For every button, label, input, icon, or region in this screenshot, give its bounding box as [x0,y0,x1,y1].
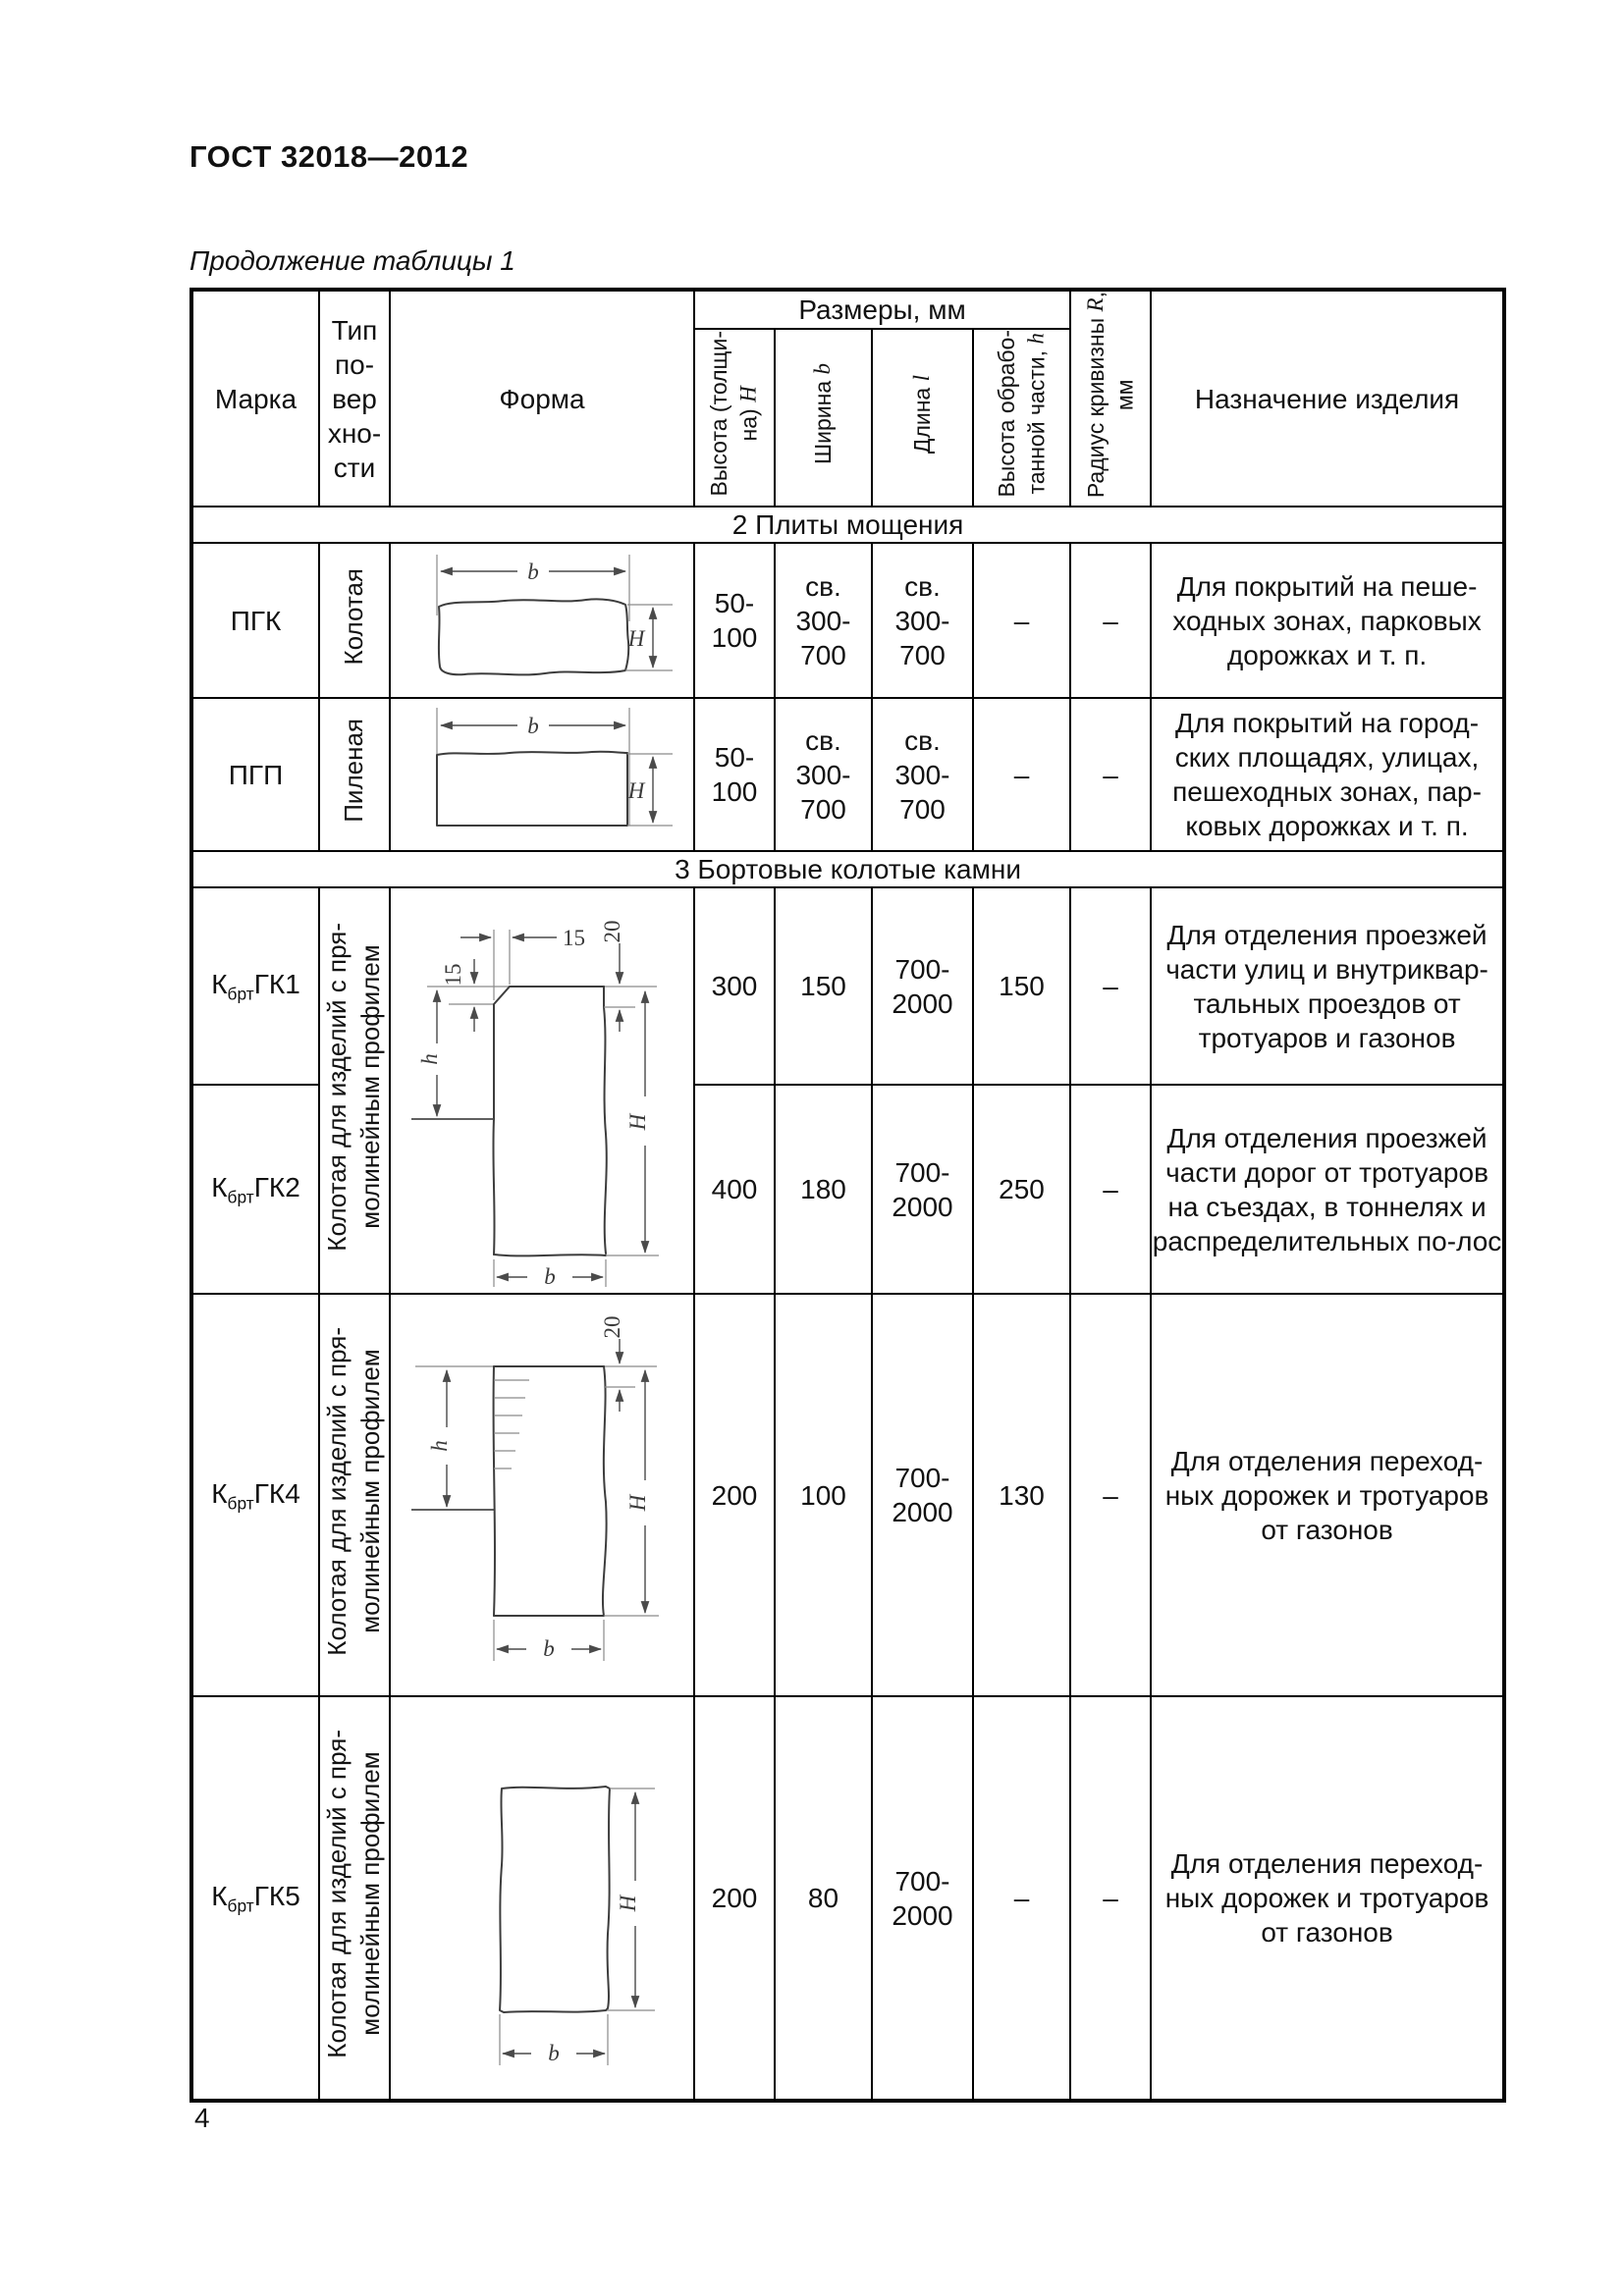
mark-prefix: К [211,1172,227,1202]
table-row: ПГК Колотая b H 50- 100 св. 300 [191,543,1504,698]
dim-label-b: b [527,560,539,584]
standard-number: ГОСТ 32018—2012 [189,139,468,175]
dim-label-H: H [625,1112,650,1131]
dim-label-20: 20 [600,921,624,943]
mark-prefix: К [211,1478,227,1509]
mark-suffix: ГК2 [254,1172,300,1202]
cell-length: св. 300- 700 [872,543,973,698]
radius-header-label: Радиус кривизны [1083,311,1109,498]
cell-radius: – [1070,698,1151,851]
cell-length: св. 300- 700 [872,698,973,851]
cell-mark-gk1: КбртГК1 [191,887,319,1085]
cell-form-gk1-gk2: 15 15 h [390,887,694,1294]
mark-prefix: К [211,1881,227,1911]
section-title-paving-slabs: 2 Плиты мощения [191,507,1504,543]
length-symbol: l [909,375,934,381]
cell-mark-gk5: КбртГК5 [191,1696,319,2101]
height-header-rotated: Высота (толщи- на) H [705,331,764,496]
products-table: Марка Тип по- вер хно- сти Форма Размеры… [189,288,1506,2103]
dim-label-b: b [548,2041,560,2065]
cell-worked-height: – [973,698,1070,851]
cell-mark-gk2: КбртГК2 [191,1085,319,1294]
section-row-paving: 2 Плиты мощения [191,507,1504,543]
cell-form-gk5: H b [390,1696,694,2101]
cell-width: св. 300- 700 [775,543,872,698]
dim-label-H: H [627,626,646,651]
cell-width: 150 [775,887,872,1085]
table-row: КбртГК4 Колотая для изделий с пря- молин… [191,1294,1504,1696]
cell-radius: – [1070,1085,1151,1294]
cell-width: св. 300- 700 [775,698,872,851]
width-header-label: Ширина [810,375,836,464]
dim-label-15: 15 [441,964,465,987]
cell-surface-pgk: Колотая [319,543,390,698]
worked-height-header-label: Высота обрабо- танной части, [994,330,1049,498]
cell-height: 200 [694,1696,775,2101]
cell-length: 700- 2000 [872,887,973,1085]
mark-suffix: ГК1 [254,969,300,999]
width-symbol: b [810,363,835,375]
cell-height: 50- 100 [694,543,775,698]
cell-length: 700- 2000 [872,1085,973,1294]
worked-height-header-rotated: Высота обрабо- танной части, h [993,330,1052,498]
radius-header-rotated: Радиус кривизны R, мм [1081,292,1140,498]
dim-label-h: h [417,1053,442,1065]
dim-label-b: b [543,1636,555,1661]
dim-label-b: b [527,714,539,738]
cell-mark-pgk: ПГК [191,543,319,698]
page-number: 4 [194,2103,210,2134]
height-header-label: Высота (толщи- на) [706,331,761,496]
cell-worked-height: – [973,1696,1070,2101]
surface-rotated-text: Колотая [338,568,371,666]
width-header-rotated: Ширина b [808,363,838,464]
cell-radius: – [1070,887,1151,1085]
col-header-radius: Радиус кривизны R, мм [1070,290,1151,507]
col-header-length: Длина l [872,329,973,507]
dim-label-b: b [544,1264,556,1289]
cell-mark-gk4: КбртГК4 [191,1294,319,1696]
dim-label-20: 20 [600,1316,624,1339]
cell-surface-gk4: Колотая для изделий с пря- молинейным пр… [319,1294,390,1696]
cell-width: 100 [775,1294,872,1696]
cell-purpose: Для отделения проезжей части дорог от тр… [1151,1085,1504,1294]
cell-purpose: Для покрытий на пеше-ходных зонах, парко… [1151,543,1504,698]
mark-prefix: К [211,969,227,999]
cell-purpose: Для отделения переход-ных дорожек и трот… [1151,1294,1504,1696]
dim-label-H: H [627,778,646,803]
curb-profile-drawing-gk4: 20 h H b [392,1296,692,1694]
cell-length: 700- 2000 [872,1294,973,1696]
table-row: КбртГК1 Колотая для изделий с пря- молин… [191,887,1504,1085]
col-header-height: Высота (толщи- на) H [694,329,775,507]
cell-form-pgk: b H [390,543,694,698]
table-row: КбртГК5 Колотая для изделий с пря- молин… [191,1696,1504,2101]
col-header-purpose: Назначение изделия [1151,290,1504,507]
cell-width: 180 [775,1085,872,1294]
col-header-dimensions-group: Размеры, мм [694,290,1070,329]
dim-label-h: h [427,1440,452,1452]
cell-height: 50- 100 [694,698,775,851]
cell-worked-height: – [973,543,1070,698]
section-title-curb-stones: 3 Бортовые колотые камни [191,851,1504,887]
table-row: ПГП Пиленая b H 50- 100 св. 300 [191,698,1504,851]
mark-subscript: брт [228,1896,254,1916]
cell-purpose: Для покрытий на город-ских площадях, ули… [1151,698,1504,851]
surface-rotated-text: Пиленая [338,719,371,823]
cell-surface-gk1-gk2: Колотая для изделий с пря- молинейным пр… [319,887,390,1294]
mark-subscript: брт [228,985,254,1004]
dim-label-15: 15 [563,926,585,950]
height-symbol: H [736,387,761,403]
cell-surface-gk5: Колотая для изделий с пря- молинейным пр… [319,1696,390,2101]
section-row-curb: 3 Бортовые колотые камни [191,851,1504,887]
surface-rotated-text: Колотая для изделий с пря- молинейным пр… [321,923,388,1252]
col-header-width: Ширина b [775,329,872,507]
dim-label-H: H [616,1894,640,1912]
surface-rotated-text: Колотая для изделий с пря- молинейным пр… [321,1327,388,1656]
cell-height: 400 [694,1085,775,1294]
cell-worked-height: 130 [973,1294,1070,1696]
cell-mark-pgp: ПГП [191,698,319,851]
cell-worked-height: 150 [973,887,1070,1085]
cell-worked-height: 250 [973,1085,1070,1294]
cell-radius: – [1070,543,1151,698]
radius-symbol: R [1083,297,1108,311]
cell-radius: – [1070,1294,1151,1696]
pgp-sawn-slab-drawing: b H [392,700,692,849]
dim-label-H: H [625,1493,650,1512]
cell-length: 700- 2000 [872,1696,973,2101]
header-row-1: Марка Тип по- вер хно- сти Форма Размеры… [191,290,1504,329]
col-header-surface-type: Тип по- вер хно- сти [319,290,390,507]
cell-height: 300 [694,887,775,1085]
cell-height: 200 [694,1294,775,1696]
cell-form-pgp: b H [390,698,694,851]
mark-suffix: ГК5 [254,1881,300,1911]
worked-height-symbol: h [1023,333,1048,345]
col-header-form: Форма [390,290,694,507]
curb-block-drawing-gk5: H b [392,1698,692,2099]
table-caption: Продолжение таблицы 1 [189,245,515,277]
cell-purpose: Для отделения проезжей части улиц и внут… [1151,887,1504,1085]
col-header-worked-height: Высота обрабо- танной части, h [973,329,1070,507]
cell-form-gk4: 20 h H b [390,1294,694,1696]
document-page: ГОСТ 32018—2012 Продолжение таблицы 1 Ма… [0,0,1623,2296]
cell-purpose: Для отделения переход-ных дорожек и трот… [1151,1696,1504,2101]
pgk-split-slab-drawing: b H [392,545,692,696]
surface-rotated-text: Колотая для изделий с пря- молинейным пр… [321,1730,388,2058]
length-header-label: Длина [909,381,935,454]
col-header-mark: Марка [191,290,319,507]
curb-profile-drawing-gk1-gk2: 15 15 h [392,888,692,1293]
mark-suffix: ГК4 [254,1478,300,1509]
cell-width: 80 [775,1696,872,2101]
length-header-rotated: Длина l [907,375,937,454]
cell-surface-pgp: Пиленая [319,698,390,851]
cell-radius: – [1070,1696,1151,2101]
mark-subscript: брт [228,1188,254,1207]
mark-subscript: брт [228,1493,254,1513]
